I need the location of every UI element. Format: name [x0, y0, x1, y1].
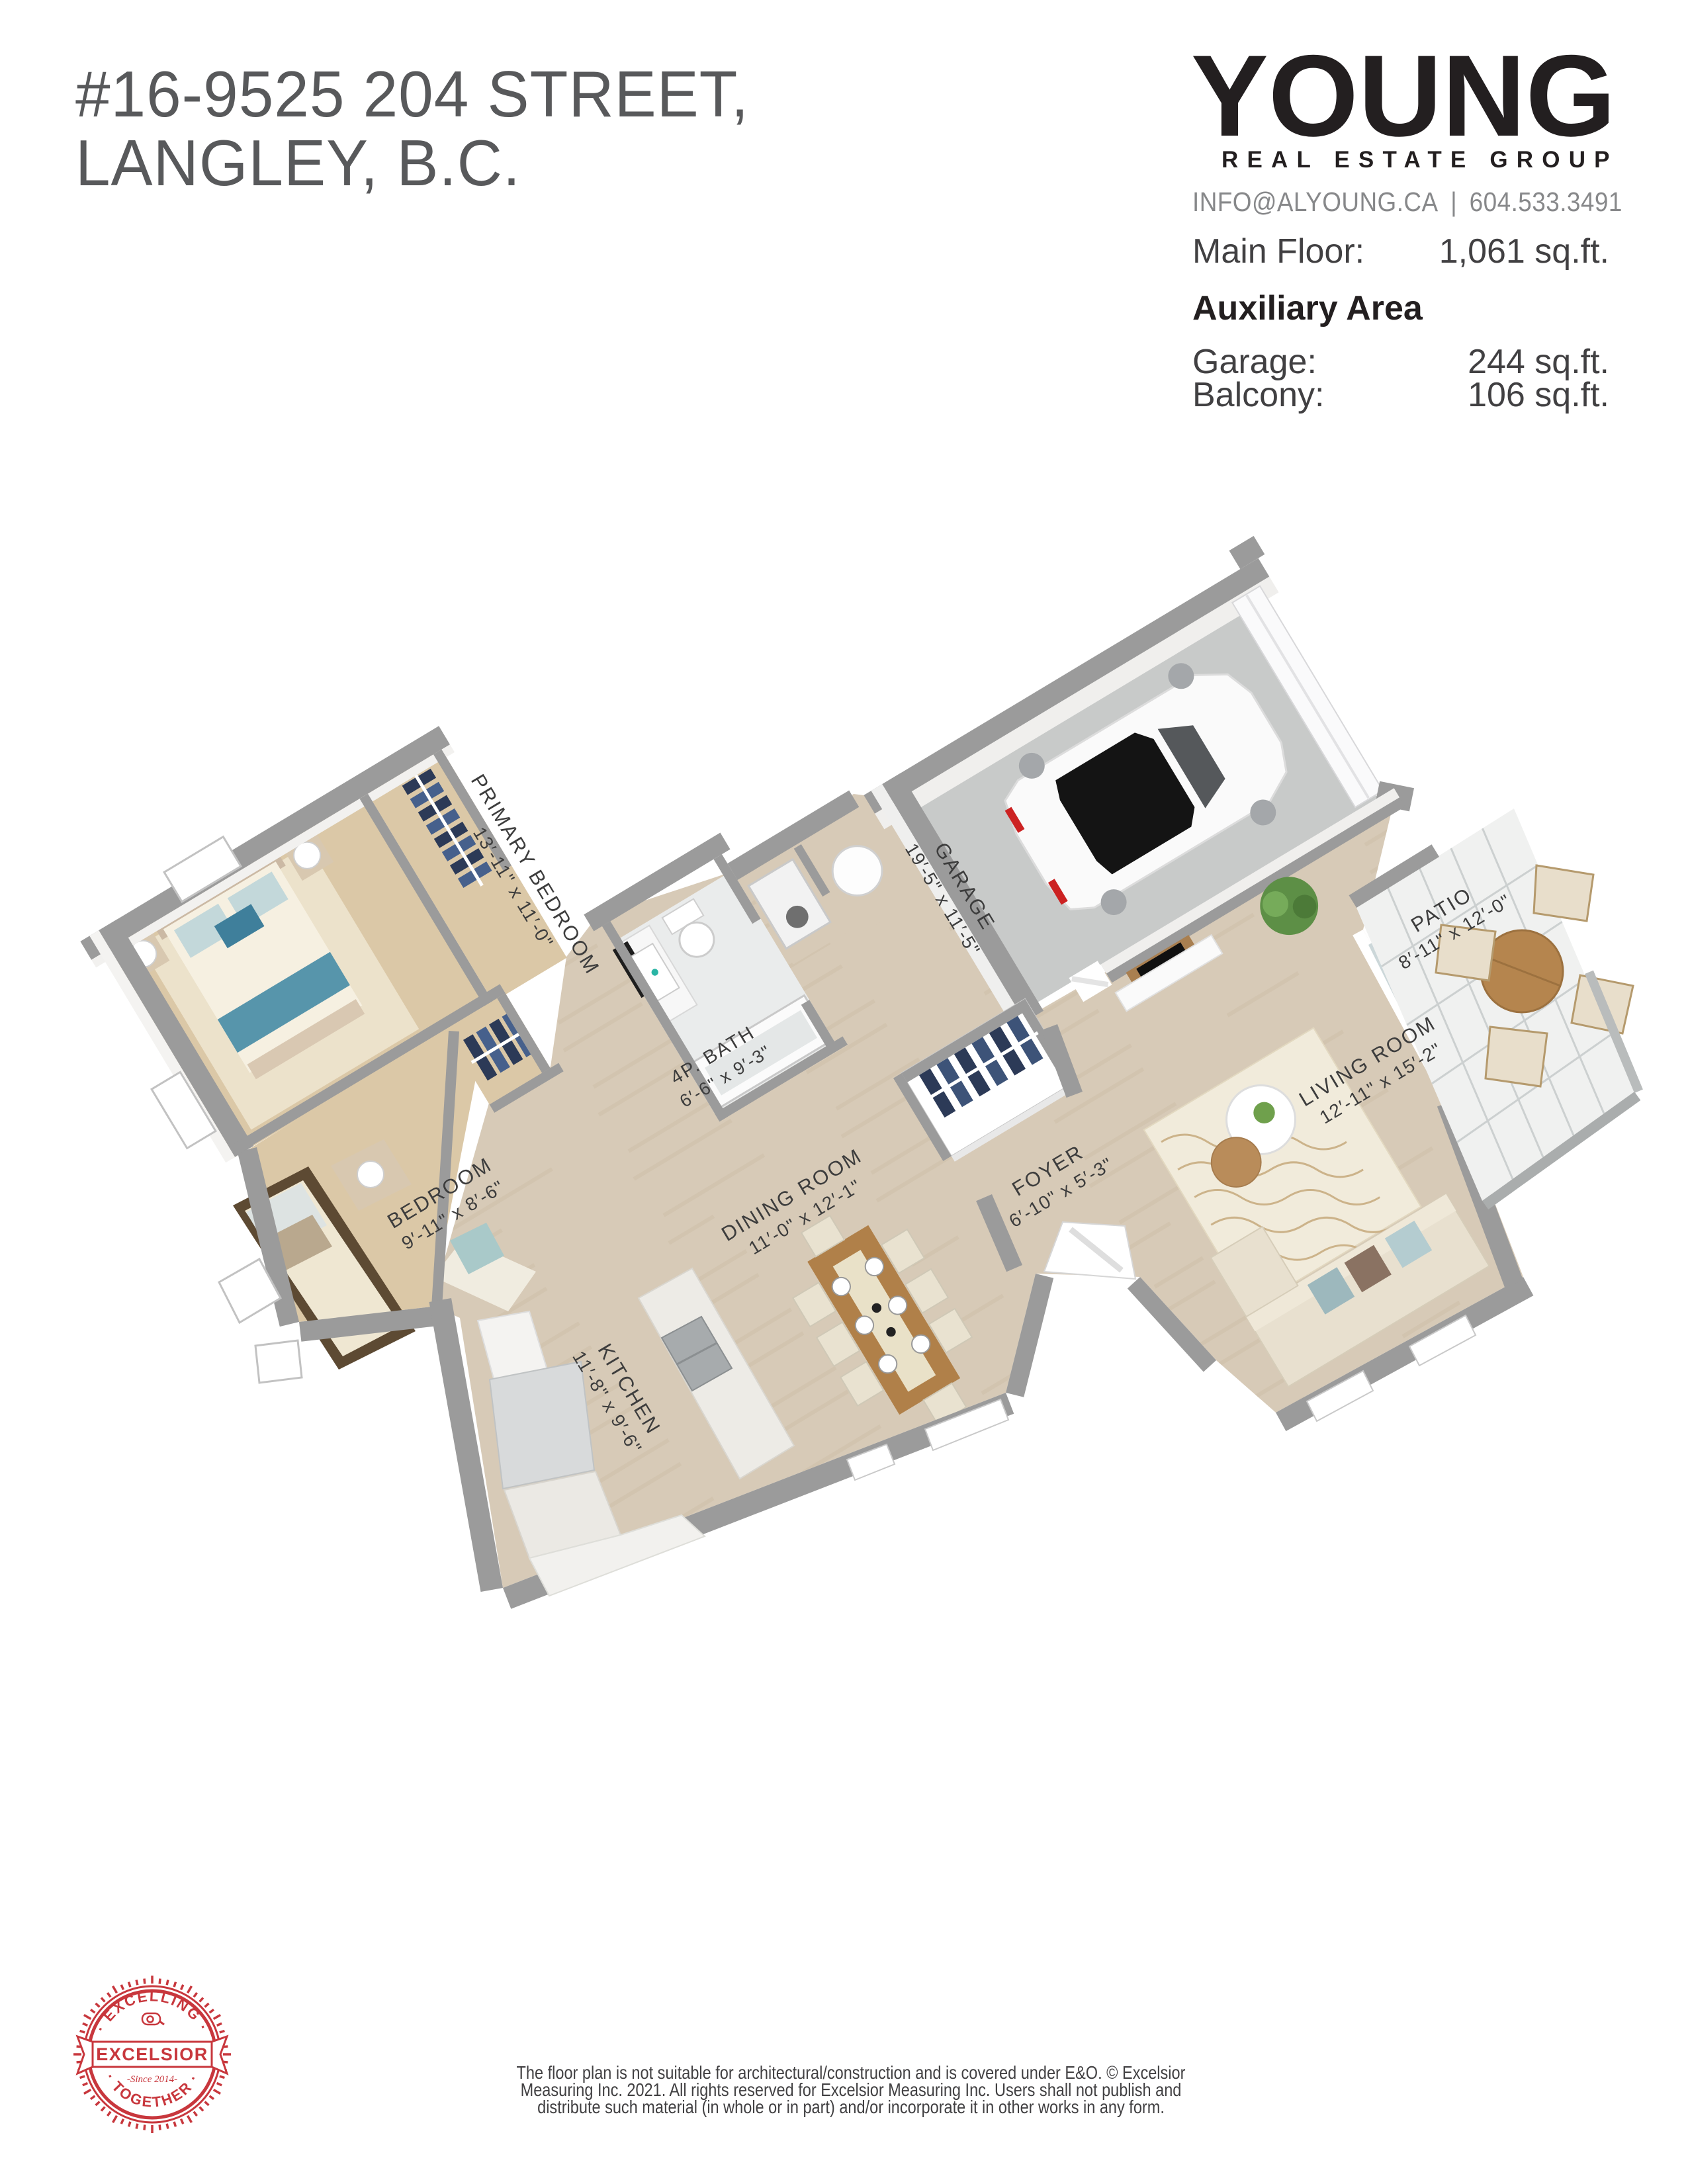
svg-text:EXCELSIOR: EXCELSIOR: [96, 2044, 208, 2064]
svg-text:-Since 2014-: -Since 2014-: [127, 2074, 177, 2085]
